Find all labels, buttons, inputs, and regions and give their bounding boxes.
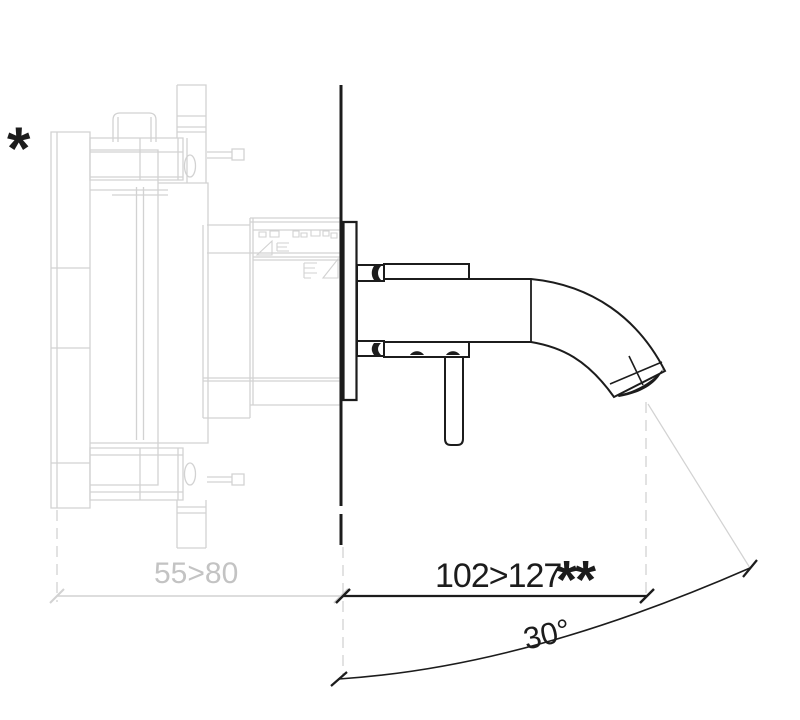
lever-handle [445, 357, 463, 445]
projection-dimension-label: 102>127 [435, 559, 561, 593]
housing-markings [257, 230, 338, 278]
footnote-double-star: ** [556, 553, 594, 607]
bottom-supply-pipe [177, 500, 206, 548]
concealed-valve-body [51, 85, 340, 548]
upper-connector-stub [357, 265, 384, 281]
faucet-body [344, 222, 666, 445]
upper-trim-plate [384, 264, 469, 279]
footnote-star: * [7, 119, 30, 179]
faucet-installation-drawing [0, 0, 800, 720]
wall-depth-dimension-label: 55>80 [154, 559, 238, 589]
escutcheon-plate [344, 222, 357, 400]
spout [357, 279, 665, 397]
upper-cartridge [90, 138, 244, 180]
lower-cartridge [90, 448, 244, 500]
angle-extension-line [648, 404, 750, 568]
drawing-canvas: * 55>80 102>127 ** 30° [0, 0, 800, 720]
top-supply-pipe [113, 85, 206, 183]
